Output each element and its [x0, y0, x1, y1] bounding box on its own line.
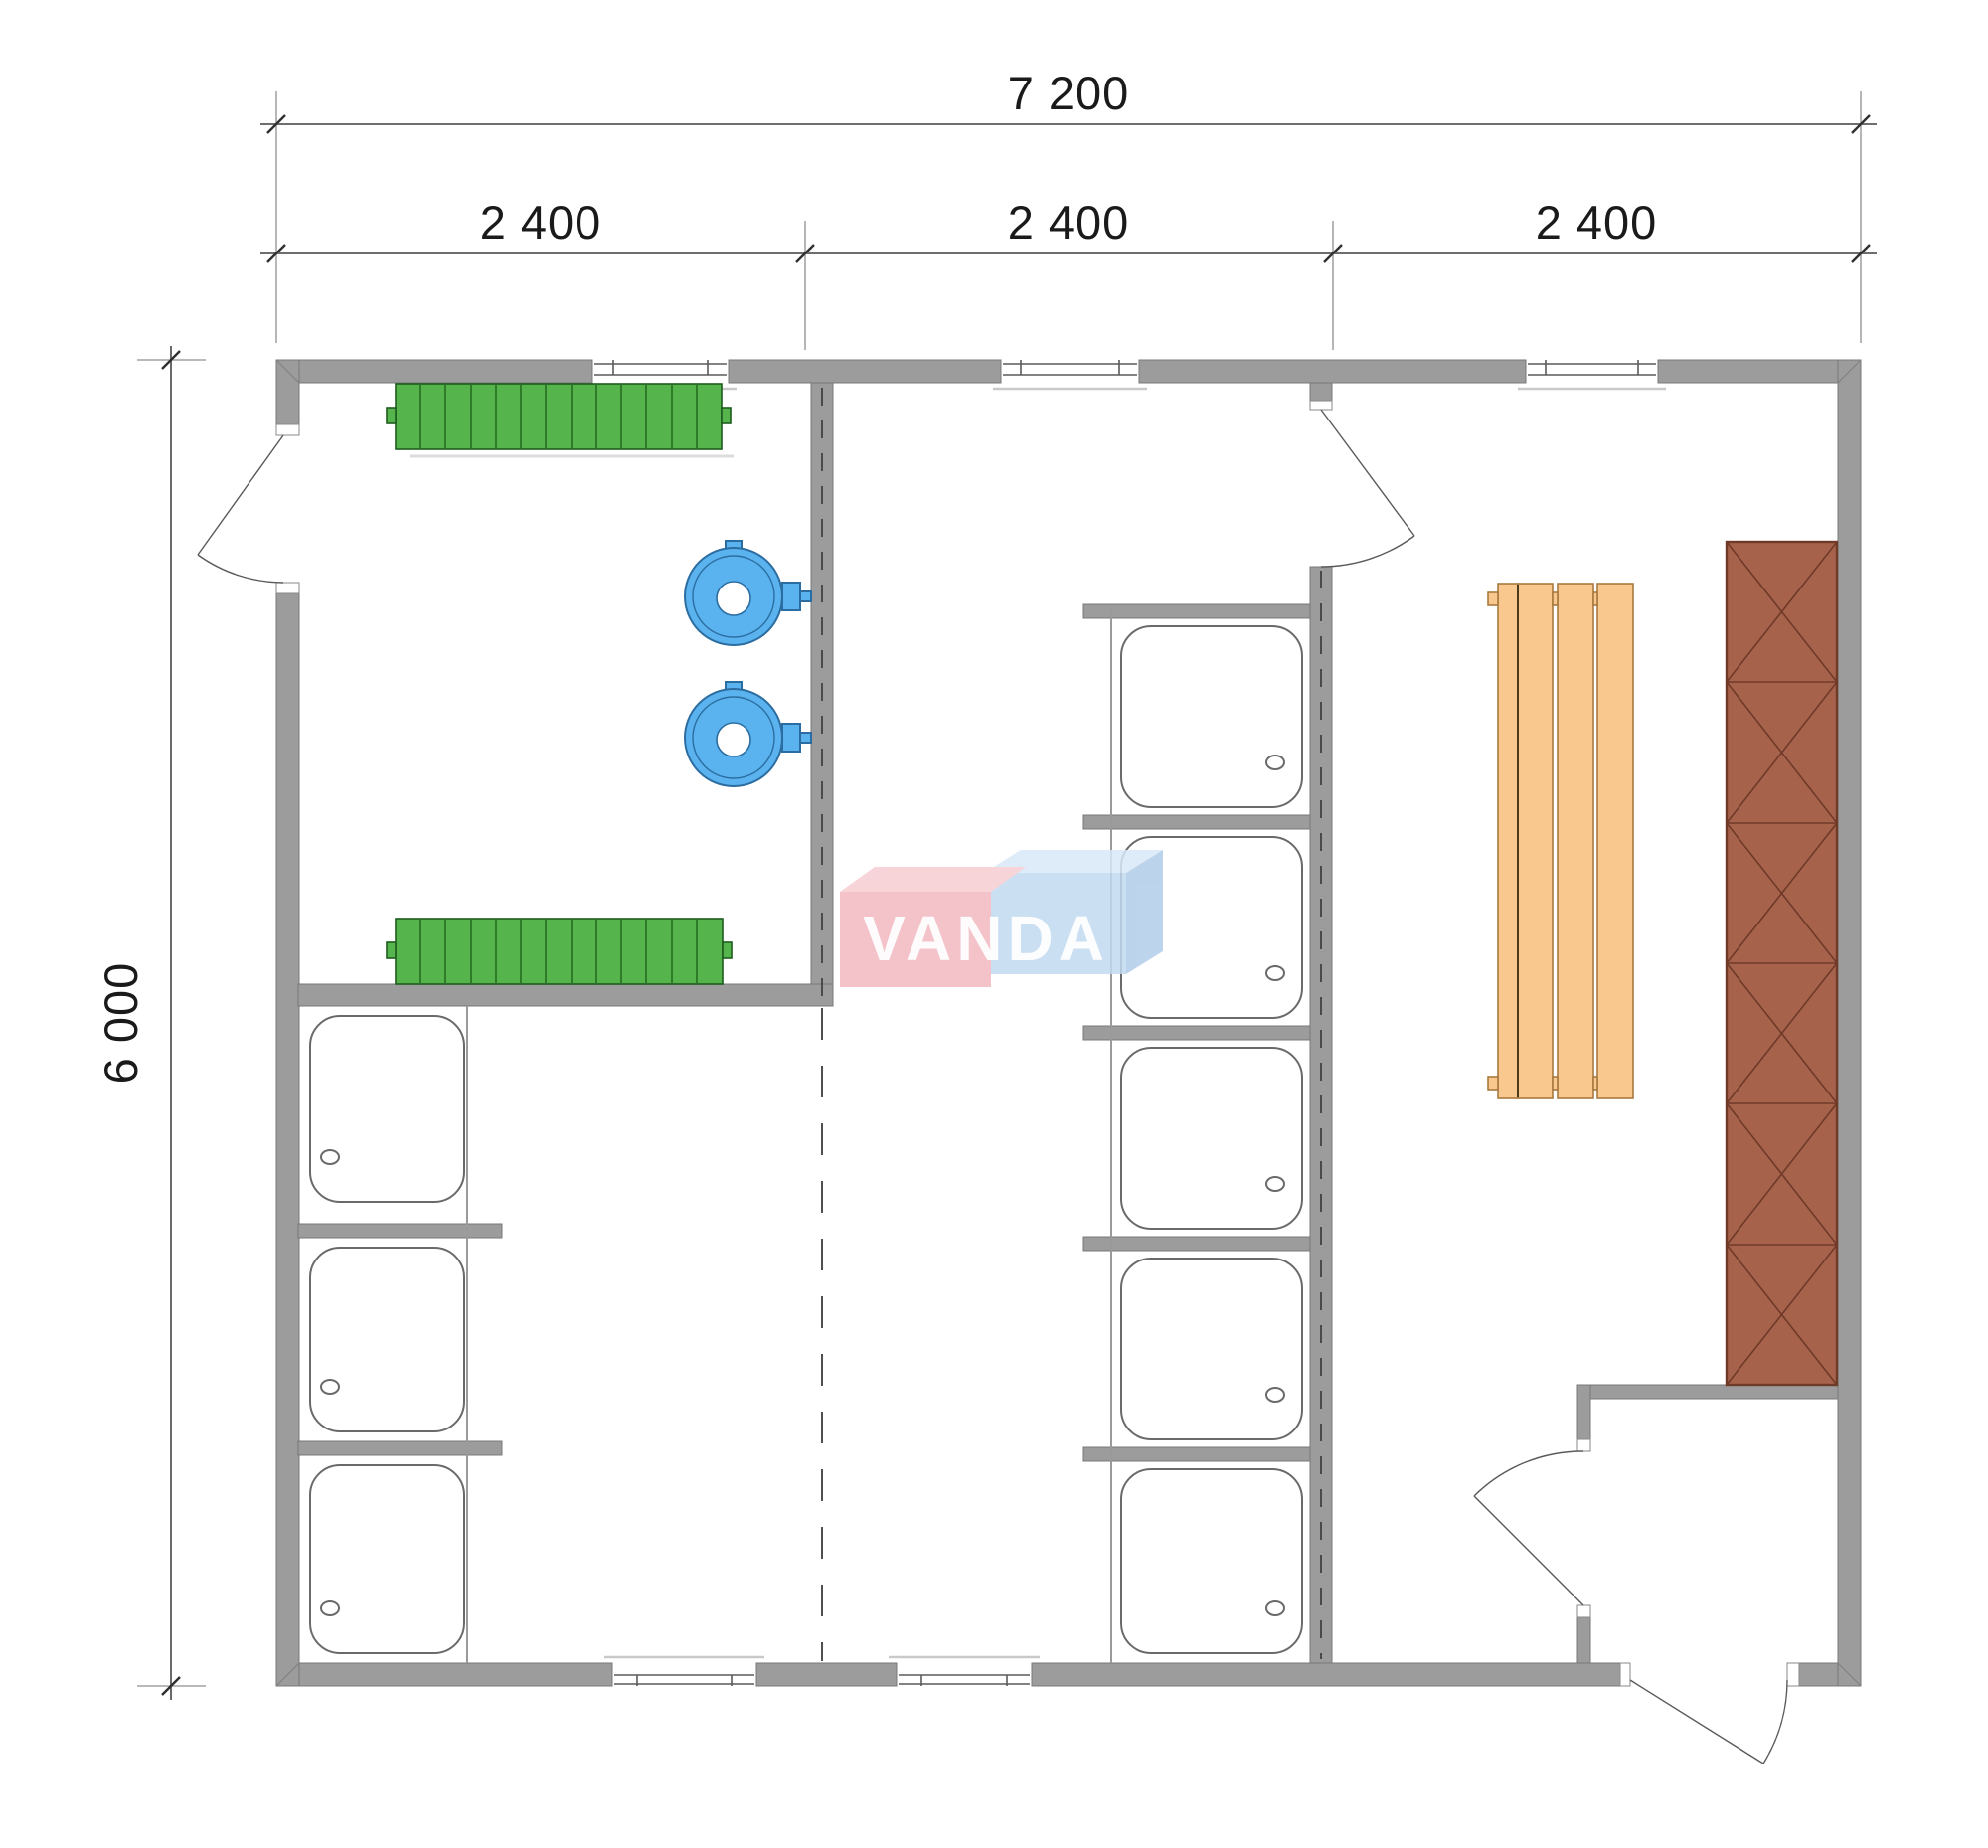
shower-partition — [298, 1224, 502, 1238]
green-bench-bottom — [387, 919, 732, 984]
green-bench-top — [387, 384, 731, 449]
shower-partition — [1083, 1447, 1310, 1461]
bench-board — [1518, 584, 1553, 1098]
door-leaf — [1474, 1496, 1583, 1605]
sauna-stove — [1727, 542, 1837, 1385]
door-jamb — [1577, 1605, 1590, 1617]
bench-cleat — [1593, 1077, 1597, 1090]
wall-vestibule-left-2 — [1577, 1617, 1590, 1663]
wall-left-2 — [276, 593, 299, 1686]
bench-bracket — [723, 942, 732, 958]
shower-partition — [1083, 1237, 1310, 1251]
bench-bracket — [387, 942, 396, 958]
bench-cleat — [1553, 1077, 1558, 1090]
door-swing-arc — [1474, 1451, 1583, 1496]
shower-trays — [310, 626, 1302, 1653]
wall-right — [1838, 360, 1861, 1686]
bench-bracket — [722, 408, 731, 423]
shower-partition — [1083, 815, 1310, 829]
shower-tray — [1121, 1469, 1302, 1653]
shower-partition — [1083, 604, 1310, 618]
shower-tray — [1121, 626, 1302, 807]
door-jamb — [276, 424, 299, 435]
watermark-text: VANDA — [863, 903, 1109, 974]
shower-tray — [310, 1248, 464, 1431]
door-leaf — [1630, 1680, 1763, 1764]
shower-drain — [1266, 966, 1284, 980]
door-swing-arc — [198, 555, 283, 583]
wall-bottom-3 — [1032, 1663, 1620, 1686]
wall-top-3 — [1139, 360, 1526, 383]
wall-bottom-2 — [756, 1663, 897, 1686]
door-jamb — [1787, 1663, 1799, 1686]
bench-cleat — [1488, 592, 1498, 605]
shower-drain — [1266, 1388, 1284, 1402]
door-swing-arc — [1763, 1680, 1787, 1764]
shower-drain — [1266, 1601, 1284, 1615]
bench-bracket — [387, 408, 396, 423]
wall-vestibule-top — [1577, 1385, 1838, 1399]
door-jamb — [1577, 1439, 1590, 1451]
shower-drain — [321, 1150, 339, 1164]
basin-wall-mount — [782, 583, 800, 610]
door-jamb — [1620, 1663, 1630, 1686]
shower-drain — [1266, 756, 1284, 769]
wall-top-1 — [276, 360, 592, 383]
wall-left-1 — [276, 360, 299, 424]
basin-outlet — [717, 582, 750, 615]
washbasins — [685, 541, 811, 786]
basin-wall-mount — [800, 733, 811, 743]
shower-tray — [1121, 1259, 1302, 1439]
dim-label-overall-height: 6 000 — [94, 962, 147, 1085]
bench-cleat — [1553, 592, 1558, 605]
changing-room-benches — [387, 384, 734, 984]
wall-top-2 — [729, 360, 1001, 383]
bench-board — [1597, 584, 1633, 1098]
bench-board — [1558, 584, 1593, 1098]
basin-wall-mount — [782, 724, 800, 752]
bench-cleat — [1593, 592, 1597, 605]
washbasin — [685, 541, 811, 645]
door-jamb — [276, 583, 299, 593]
basin-outlet — [717, 723, 750, 756]
door-leaf — [198, 435, 283, 555]
bench-cleat — [1488, 1077, 1498, 1090]
wall-interior-2-top — [1310, 383, 1332, 401]
shower-tray — [1121, 1048, 1302, 1229]
shower-tray — [310, 1016, 464, 1202]
dim-label-overall-width: 7 200 — [1008, 67, 1130, 119]
door-leaf — [1321, 410, 1414, 536]
sauna-bench — [1488, 584, 1633, 1098]
wall-top-4 — [1658, 360, 1861, 383]
wall-changing-room-bottom — [298, 984, 833, 1006]
washbasin — [685, 682, 811, 786]
wall-bottom-1 — [276, 1663, 612, 1686]
shower-partition — [298, 1441, 502, 1455]
shower-partition — [1083, 1026, 1310, 1040]
dim-label-segment-2: 2 400 — [1008, 196, 1130, 249]
shower-drain — [321, 1601, 339, 1615]
shower-drain — [321, 1380, 339, 1394]
floor-plan-canvas: 7 200 2 400 2 400 2 400 6 000 — [0, 0, 1988, 1848]
door-swing-arc — [1321, 536, 1414, 567]
dim-label-segment-1: 2 400 — [480, 196, 602, 249]
door-jamb — [1310, 401, 1332, 410]
basin-wall-mount — [800, 591, 811, 601]
bench-board — [1498, 584, 1518, 1098]
shower-drain — [1266, 1177, 1284, 1191]
wall-vestibule-left-1 — [1577, 1385, 1590, 1439]
dim-label-segment-3: 2 400 — [1536, 196, 1658, 249]
shower-tray — [310, 1465, 464, 1653]
